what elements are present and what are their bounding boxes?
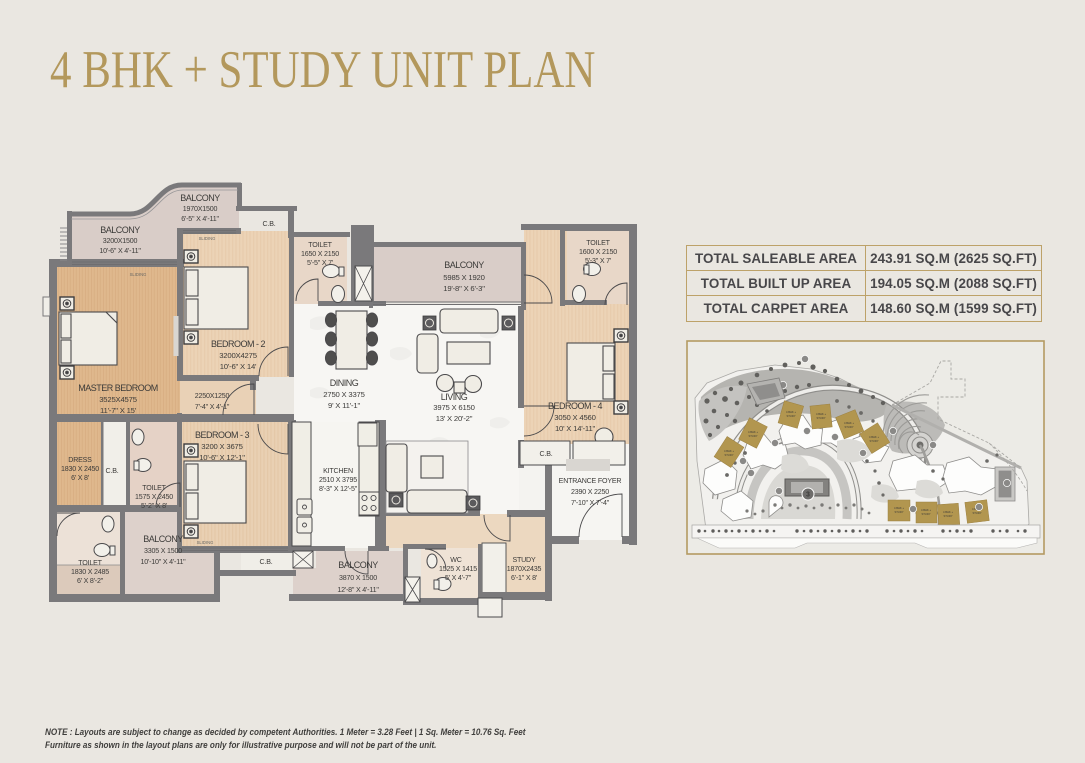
svg-text:STUDY: STUDY bbox=[894, 510, 903, 514]
svg-text:4 BHK +: 4 BHK + bbox=[921, 508, 932, 512]
svg-text:5985 X 1920: 5985 X 1920 bbox=[443, 273, 484, 282]
svg-text:3305 X 1500: 3305 X 1500 bbox=[144, 547, 182, 555]
svg-text:6'-5" X 4'-11": 6'-5" X 4'-11" bbox=[181, 215, 219, 223]
svg-text:3525X4575: 3525X4575 bbox=[99, 395, 137, 404]
svg-text:3975 X 6150: 3975 X 6150 bbox=[433, 403, 474, 412]
svg-text:5'-2" X 8': 5'-2" X 8' bbox=[141, 502, 167, 510]
svg-text:BALCONY: BALCONY bbox=[100, 225, 140, 235]
svg-text:STUDY: STUDY bbox=[786, 414, 795, 418]
svg-text:4 BHK +: 4 BHK + bbox=[786, 410, 797, 414]
svg-text:10' X 14'-11": 10' X 14'-11" bbox=[555, 424, 596, 433]
svg-text:3200X1500: 3200X1500 bbox=[103, 237, 138, 245]
svg-text:4 BHK +: 4 BHK + bbox=[943, 510, 954, 514]
svg-text:LIVING: LIVING bbox=[441, 392, 468, 402]
svg-text:C.B.: C.B. bbox=[263, 220, 276, 228]
svg-text:TOILET: TOILET bbox=[308, 241, 332, 249]
svg-text:SLIDING: SLIDING bbox=[197, 540, 214, 545]
svg-text:BALCONY: BALCONY bbox=[444, 260, 484, 270]
svg-text:12'-8" X 4'-11": 12'-8" X 4'-11" bbox=[337, 586, 379, 594]
svg-text:TOILET: TOILET bbox=[78, 559, 102, 567]
svg-text:1575 X 2450: 1575 X 2450 bbox=[135, 493, 173, 501]
svg-text:7'-10" X 7'-4": 7'-10" X 7'-4" bbox=[571, 499, 610, 507]
svg-text:STUDY: STUDY bbox=[921, 512, 930, 516]
svg-text:BALCONY: BALCONY bbox=[180, 193, 220, 203]
svg-text:4 BHK +: 4 BHK + bbox=[816, 412, 827, 416]
svg-text:1970X1500: 1970X1500 bbox=[183, 205, 218, 213]
svg-text:1830 X 2485: 1830 X 2485 bbox=[71, 568, 109, 576]
svg-text:1830 X 2450: 1830 X 2450 bbox=[61, 465, 99, 473]
svg-text:1650 X 2150: 1650 X 2150 bbox=[301, 250, 339, 258]
svg-text:10'-6" X 4'-11": 10'-6" X 4'-11" bbox=[99, 247, 141, 255]
svg-text:4 BHK +: 4 BHK + bbox=[844, 421, 855, 425]
svg-text:STUDY: STUDY bbox=[816, 416, 825, 420]
svg-text:4 BHK +: 4 BHK + bbox=[894, 506, 905, 510]
svg-text:ENTRANCE FOYER: ENTRANCE FOYER bbox=[559, 477, 622, 485]
svg-text:5' X 4'-7": 5' X 4'-7" bbox=[445, 574, 472, 582]
svg-text:4 BHK +: 4 BHK + bbox=[748, 430, 759, 434]
svg-text:10'-6" X 12'-1": 10'-6" X 12'-1" bbox=[199, 453, 245, 462]
svg-text:10'-6" X 14': 10'-6" X 14' bbox=[220, 362, 257, 371]
svg-text:STUDY: STUDY bbox=[512, 556, 536, 564]
svg-text:TOILET: TOILET bbox=[586, 239, 610, 247]
svg-text:3870 X 1500: 3870 X 1500 bbox=[339, 574, 377, 582]
svg-text:BEDROOM - 3: BEDROOM - 3 bbox=[195, 430, 250, 440]
svg-text:KITCHEN: KITCHEN bbox=[323, 467, 353, 475]
svg-text:6'-1" X 8': 6'-1" X 8' bbox=[511, 574, 537, 582]
svg-text:6' X 8'-2": 6' X 8'-2" bbox=[77, 577, 104, 585]
svg-text:3: 3 bbox=[806, 492, 810, 499]
svg-text:3050 X 4560: 3050 X 4560 bbox=[554, 413, 595, 422]
svg-text:STUDY: STUDY bbox=[724, 453, 733, 457]
svg-text:11'-7" X 15': 11'-7" X 15' bbox=[100, 406, 137, 415]
svg-text:3200 X 3675: 3200 X 3675 bbox=[201, 442, 242, 451]
svg-text:DRESS: DRESS bbox=[68, 456, 92, 464]
svg-text:STUDY: STUDY bbox=[943, 514, 952, 518]
svg-text:STUDY: STUDY bbox=[844, 425, 853, 429]
svg-text:19'-8" X 6'-3": 19'-8" X 6'-3" bbox=[443, 284, 485, 293]
svg-text:C.B.: C.B. bbox=[106, 467, 119, 475]
svg-text:BEDROOM - 2: BEDROOM - 2 bbox=[211, 339, 266, 349]
svg-text:DINING: DINING bbox=[330, 378, 359, 388]
svg-text:10'-10" X 4'-11": 10'-10" X 4'-11" bbox=[140, 558, 186, 566]
svg-text:9' X 11'-1": 9' X 11'-1" bbox=[328, 401, 360, 410]
svg-text:6' X 8': 6' X 8' bbox=[71, 474, 89, 482]
svg-text:SLIDING: SLIDING bbox=[199, 236, 216, 241]
svg-text:2250X1250: 2250X1250 bbox=[195, 392, 230, 400]
svg-text:BALCONY: BALCONY bbox=[338, 560, 378, 570]
svg-text:13' X 20'-2": 13' X 20'-2" bbox=[436, 414, 473, 423]
svg-text:1600 X 2150: 1600 X 2150 bbox=[579, 248, 617, 256]
svg-text:STUDY: STUDY bbox=[869, 439, 878, 443]
svg-text:2390 X 2250: 2390 X 2250 bbox=[571, 488, 609, 496]
svg-text:C.B.: C.B. bbox=[540, 450, 553, 458]
svg-text:7'-4" X 4'-1": 7'-4" X 4'-1" bbox=[195, 403, 230, 411]
svg-text:1525 X 1415: 1525 X 1415 bbox=[439, 565, 477, 573]
svg-text:5'-3" X 7': 5'-3" X 7' bbox=[585, 257, 611, 265]
svg-text:STUDY: STUDY bbox=[972, 511, 981, 515]
svg-text:C.B.: C.B. bbox=[260, 558, 273, 566]
svg-text:2510 X 3795: 2510 X 3795 bbox=[319, 476, 357, 484]
svg-text:2750 X 3375: 2750 X 3375 bbox=[323, 390, 364, 399]
svg-text:BALCONY: BALCONY bbox=[143, 534, 183, 544]
svg-text:SLIDING: SLIDING bbox=[130, 272, 147, 277]
svg-text:BEDROOM - 4: BEDROOM - 4 bbox=[548, 401, 603, 411]
svg-text:5'-5" X 7': 5'-5" X 7' bbox=[307, 259, 333, 267]
svg-text:MASTER BEDROOM: MASTER BEDROOM bbox=[78, 383, 158, 393]
svg-text:3200X4275: 3200X4275 bbox=[219, 351, 257, 360]
svg-text:8'-3" X 12'-5": 8'-3" X 12'-5" bbox=[319, 485, 358, 493]
svg-text:TOILET: TOILET bbox=[142, 484, 166, 492]
svg-text:4 BHK +: 4 BHK + bbox=[724, 449, 735, 453]
svg-text:STUDY: STUDY bbox=[748, 434, 757, 438]
svg-text:WC: WC bbox=[450, 556, 461, 564]
svg-text:4 BHK +: 4 BHK + bbox=[869, 435, 880, 439]
svg-text:1870X2435: 1870X2435 bbox=[507, 565, 542, 573]
